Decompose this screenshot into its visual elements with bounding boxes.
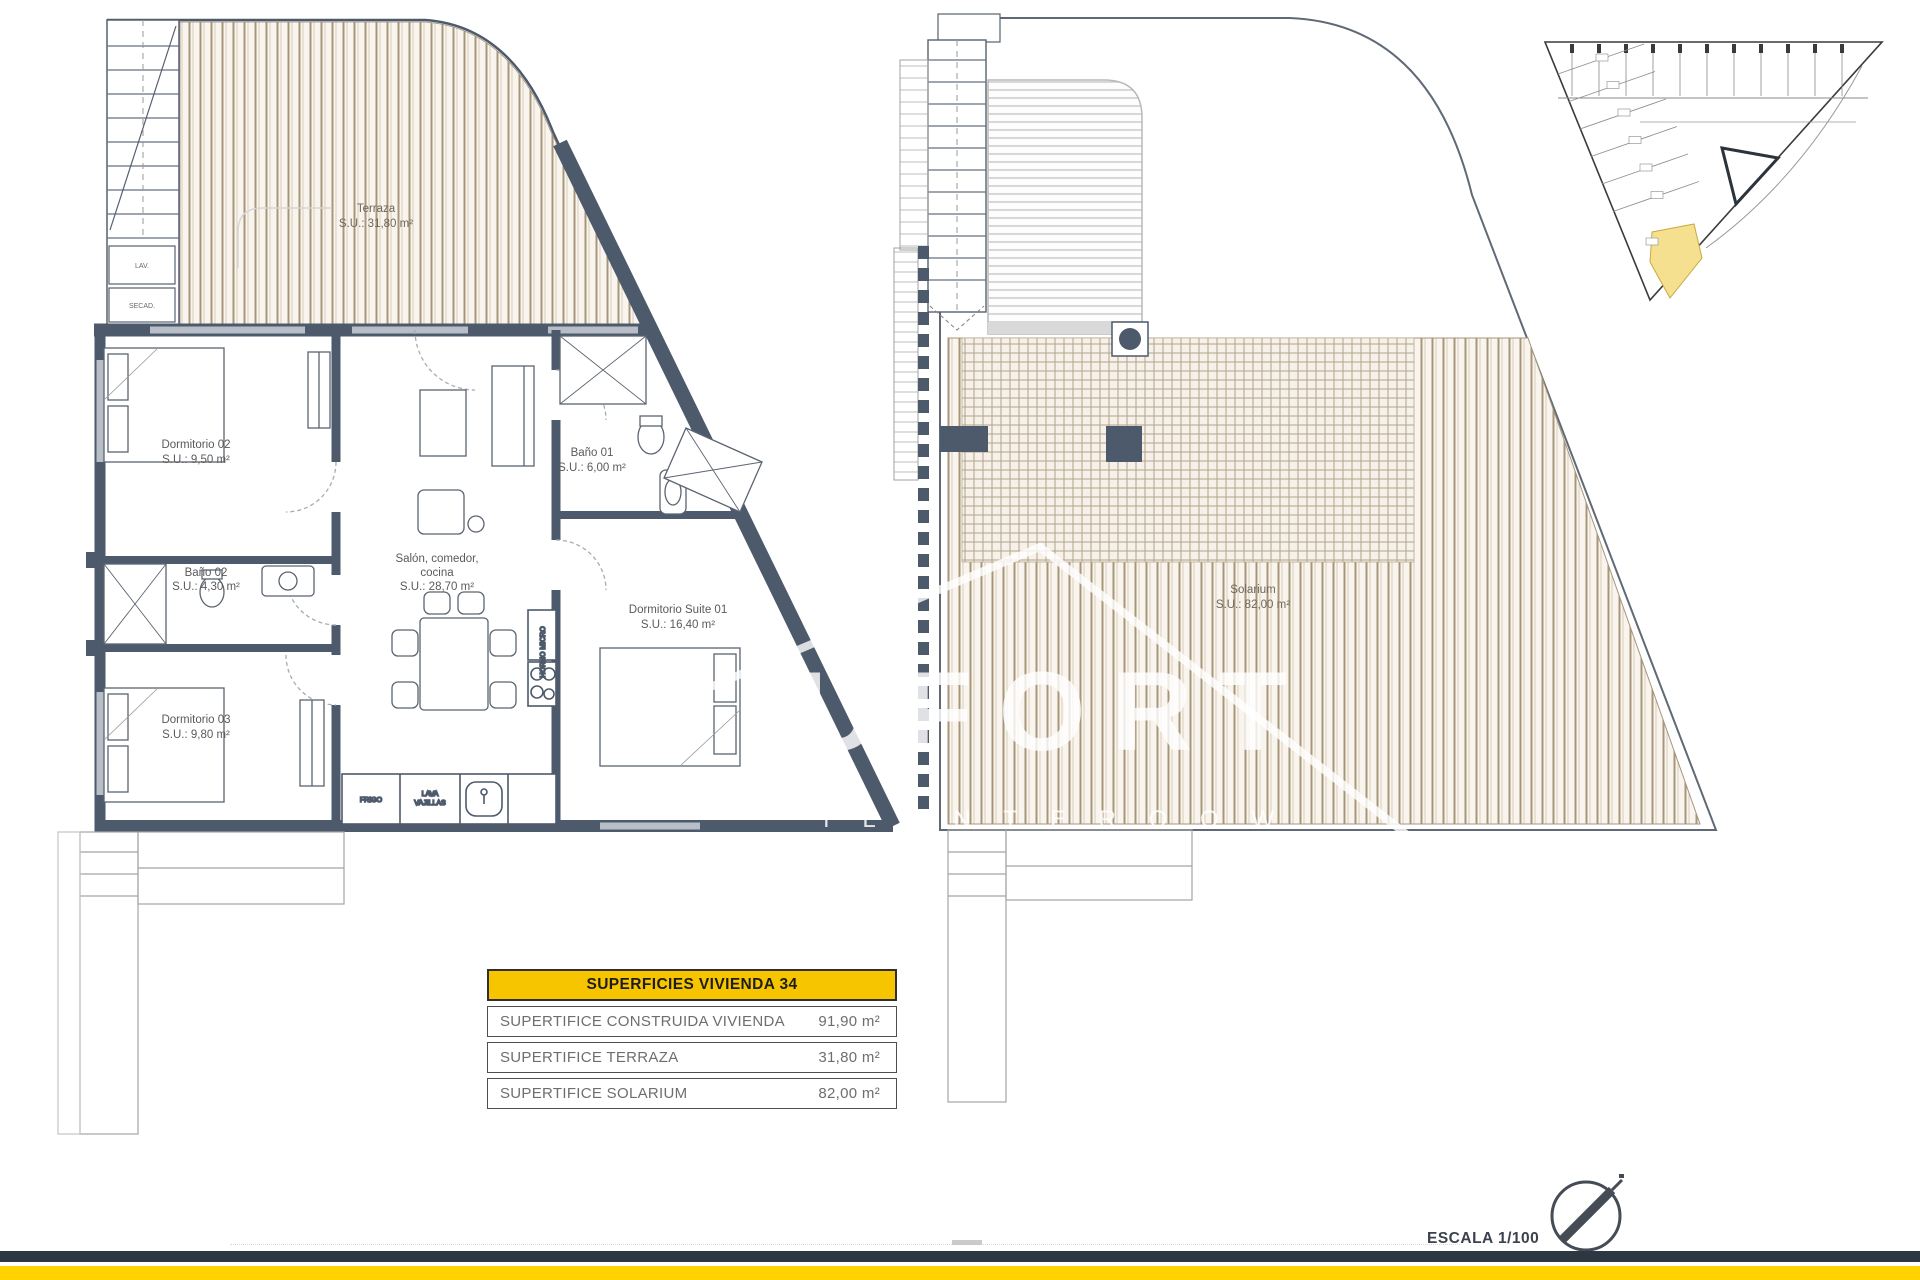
areas-table: SUPERFICIES VIVIENDA 34 SUPERTIFICE CONS… [487,969,897,1109]
site-plan [1545,42,1882,300]
bano01-area: S.U.: 6,00 m² [558,462,626,474]
terraza-area: S.U.: 31,80 m² [339,218,413,230]
solarium-roof-plan: Solarium S.U.: 82,00 m² [894,14,1716,1102]
row-label: SUPERTIFICE TERRAZA [500,1049,679,1066]
dorm03-area: S.U.: 9,80 m² [162,729,230,741]
bano02-label: Baño 02 [185,567,228,579]
areas-table-header: SUPERFICIES VIVIENDA 34 [487,969,897,1001]
lower-annex-right [948,830,1192,1102]
lower-annex-left [58,832,344,1134]
footer-yellow-stripe [0,1266,1920,1280]
floorplan-drawing: LAV. SECAD. [0,0,1920,1280]
scale-block: ESCALA 1/100 [1427,1174,1624,1250]
chimney-block [1106,426,1142,462]
staircase: LAV. SECAD. [107,20,179,326]
oven-label: HORNO MICRO [540,626,547,678]
salon-label-2: cocina [420,567,454,579]
table-row: SUPERTIFICE CONSTRUIDA VIVIENDA 91,90 m² [487,1006,897,1037]
dorm02-label: Dormitorio 02 [161,439,230,451]
table-row: SUPERTIFICE SOLARIUM 82,00 m² [487,1078,897,1109]
pergola-strips [894,60,929,809]
row-value: 31,80 m² [818,1049,880,1066]
north-arrow-icon [1552,1174,1624,1250]
row-value: 82,00 m² [818,1085,880,1102]
row-label: SUPERTIFICE CONSTRUIDA VIVIENDA [500,1013,785,1030]
table-row: SUPERTIFICE TERRAZA 31,80 m² [487,1042,897,1073]
page-edge-dots [230,1244,1460,1245]
dorm02-area: S.U.: 9,50 m² [162,454,230,466]
dishwasher-label-1: LAVA [422,791,439,798]
suite-area: S.U.: 16,40 m² [641,619,715,631]
entry-canopy [988,80,1142,334]
terraza-label: Terraza [357,203,396,215]
solarium-area: S.U.: 82,00 m² [1216,599,1290,611]
suite-label: Dormitorio Suite 01 [629,604,727,616]
bano01-label: Baño 01 [571,447,614,459]
service-circle [1119,328,1141,350]
wall-block [940,426,988,452]
footer-dark-stripe [0,1251,1920,1262]
pergola-grid [962,338,1414,562]
washer-label: LAV. [135,263,149,270]
salon-label-1: Salón, comedor, [395,553,478,565]
page-edge-mark [952,1240,982,1245]
salon-area: S.U.: 28,70 m² [400,581,474,593]
dishwasher-label-2: VAJILLAS [414,800,446,807]
solarium-label: Solarium [1230,584,1275,596]
dwelling-floor-plan: LAV. SECAD. [58,20,893,1134]
dorm03-label: Dormitorio 03 [161,714,230,726]
fridge-label: FRIGO [360,797,383,804]
bano02-area: S.U.: 4,30 m² [172,581,240,593]
row-value: 91,90 m² [818,1013,880,1030]
dryer-label: SECAD. [129,303,155,310]
row-label: SUPERTIFICE SOLARIUM [500,1085,687,1102]
